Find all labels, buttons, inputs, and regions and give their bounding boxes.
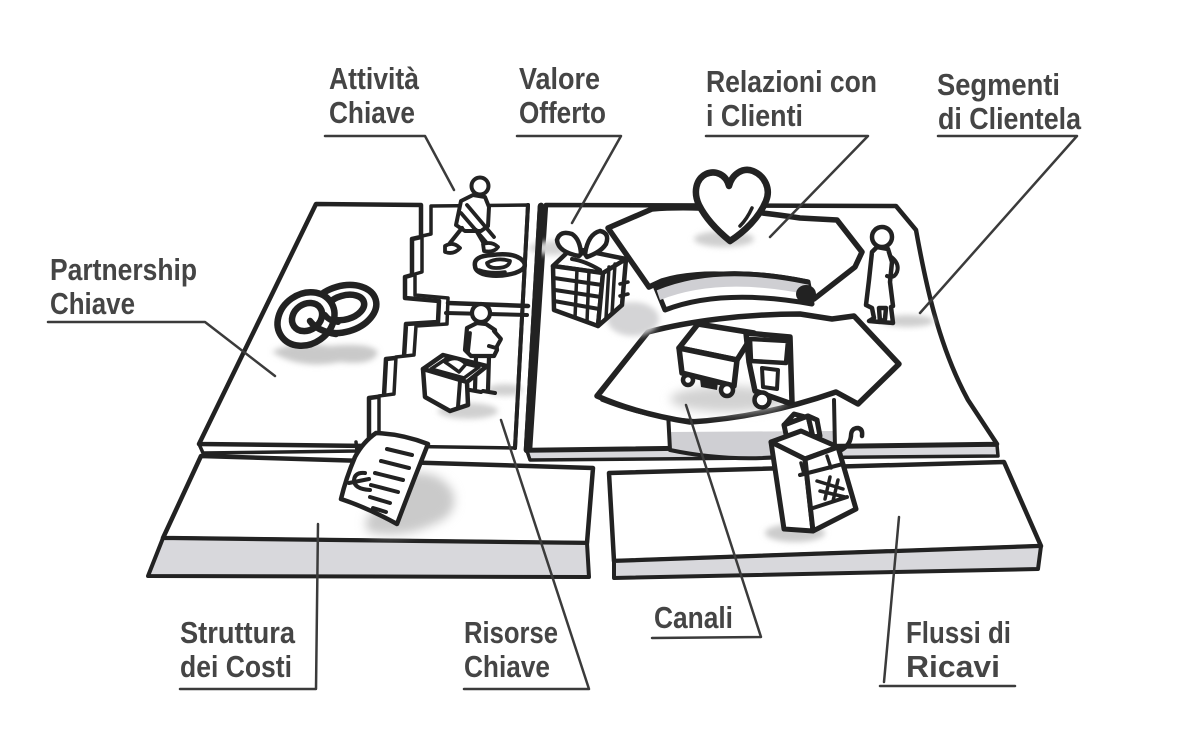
- svg-text:i Clienti: i Clienti: [706, 98, 803, 133]
- svg-text:Struttura: Struttura: [180, 615, 296, 650]
- svg-text:Flussi di: Flussi di: [906, 615, 1011, 650]
- svg-text:Canali: Canali: [654, 600, 733, 635]
- svg-text:Partnership: Partnership: [50, 252, 197, 287]
- svg-text:Offerto: Offerto: [519, 95, 606, 130]
- svg-text:Chiave: Chiave: [329, 95, 415, 130]
- svg-text:Relazioni con: Relazioni con: [706, 64, 877, 99]
- svg-text:Attività: Attività: [329, 61, 420, 96]
- svg-text:Ricavi: Ricavi: [906, 649, 1000, 684]
- svg-text:Chiave: Chiave: [50, 286, 135, 321]
- svg-text:di Clientela: di Clientela: [938, 101, 1082, 136]
- svg-text:Segmenti: Segmenti: [937, 67, 1060, 102]
- svg-text:Valore: Valore: [519, 61, 600, 96]
- svg-text:Risorse: Risorse: [464, 615, 558, 650]
- svg-text:Chiave: Chiave: [464, 649, 550, 684]
- svg-text:dei Costi: dei Costi: [180, 649, 292, 684]
